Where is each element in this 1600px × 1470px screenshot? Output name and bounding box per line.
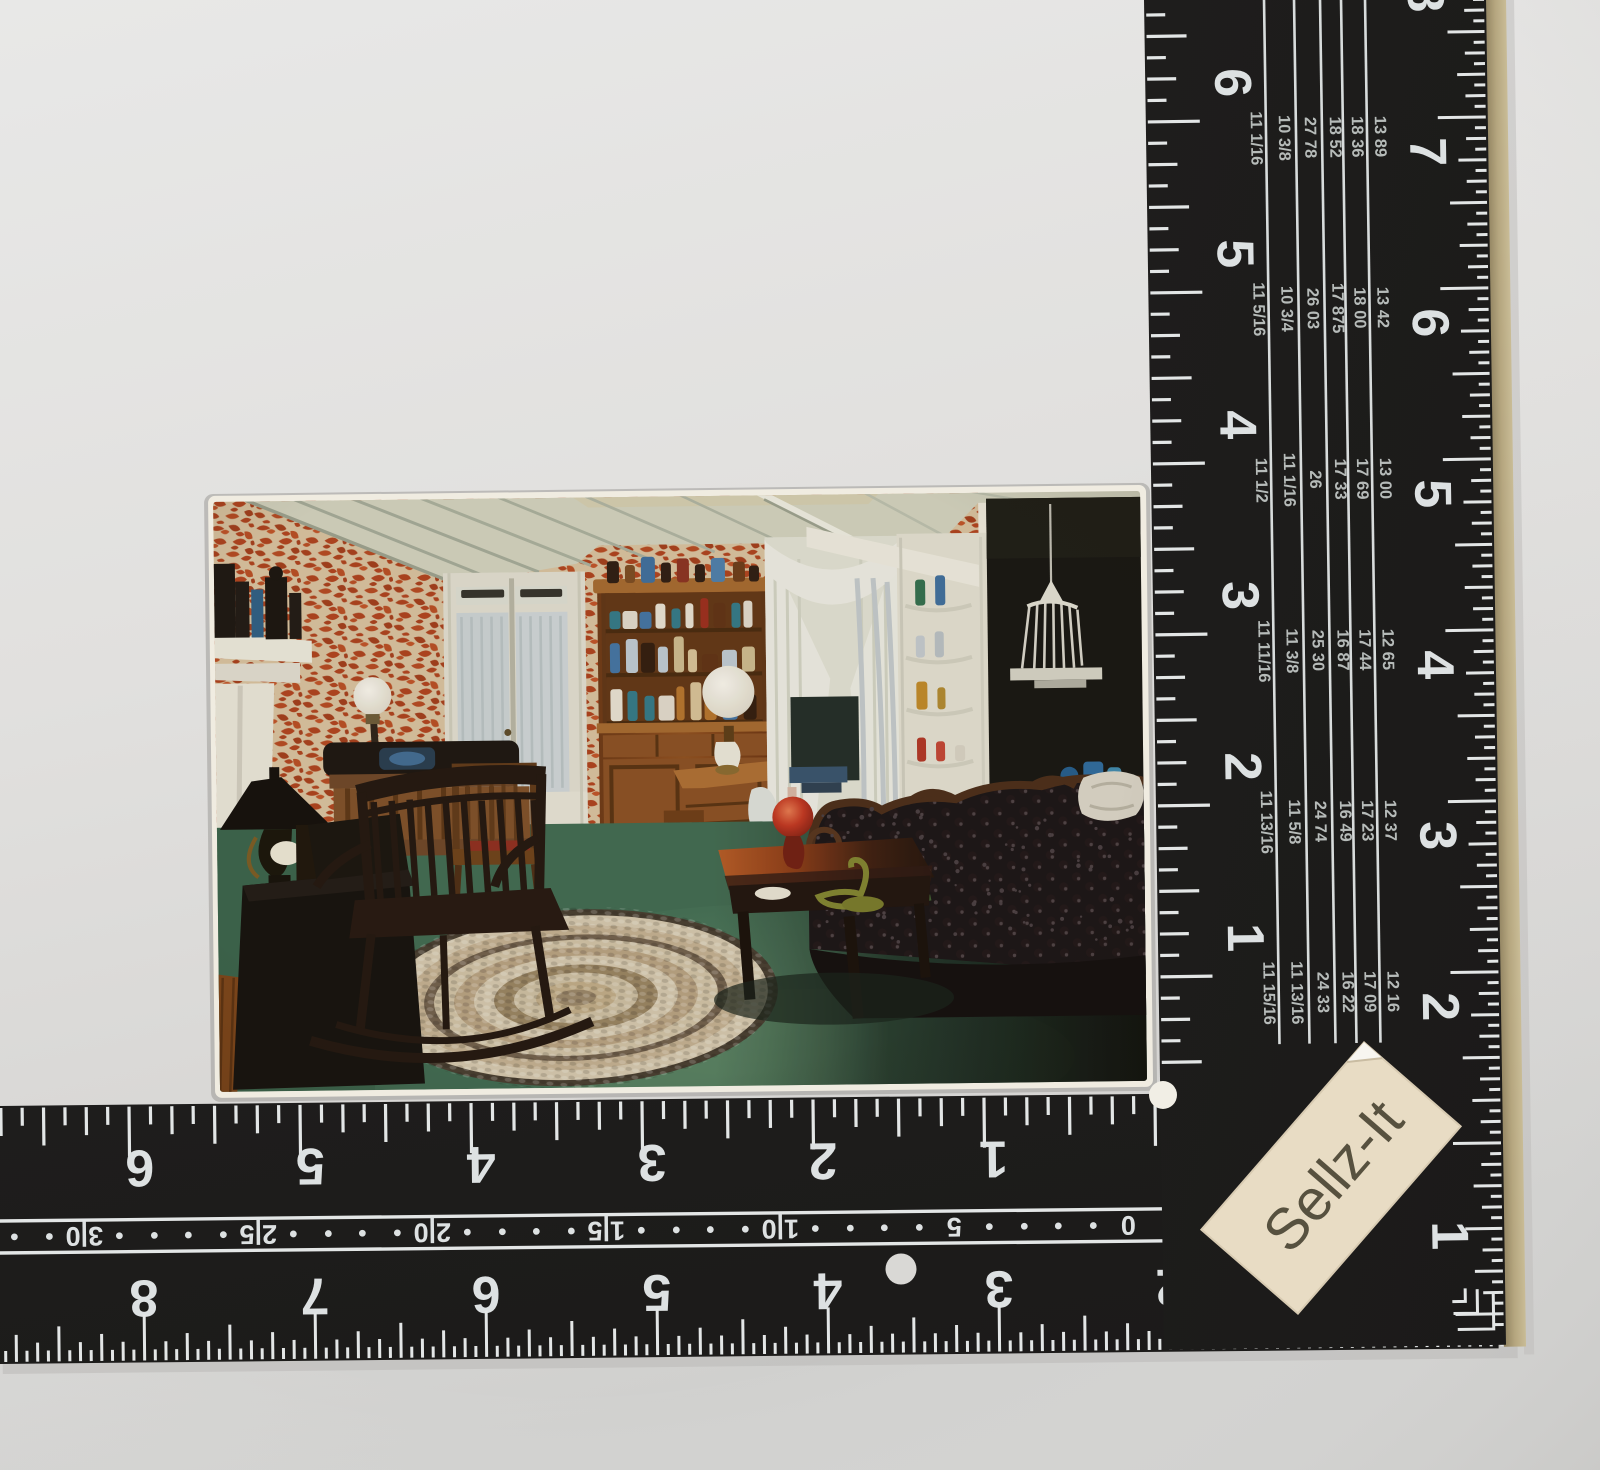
- svg-text:13 89: 13 89: [1371, 116, 1390, 158]
- svg-text:11 3/8: 11 3/8: [1282, 628, 1301, 673]
- svg-text:5: 5: [947, 1212, 962, 1242]
- svg-text:11 1/16: 11 1/16: [1247, 111, 1266, 165]
- svg-text:16 87: 16 87: [1333, 629, 1352, 671]
- svg-text:6: 6: [125, 1138, 155, 1196]
- svg-text:17 69: 17 69: [1353, 458, 1372, 500]
- svg-text:1: 1: [1216, 923, 1274, 953]
- svg-text:26 03: 26 03: [1303, 288, 1322, 330]
- svg-text:6: 6: [1203, 68, 1261, 98]
- svg-text:11 15/16: 11 15/16: [1259, 961, 1278, 1025]
- svg-text:4: 4: [466, 1135, 496, 1193]
- svg-text:18 36: 18 36: [1348, 116, 1367, 158]
- svg-text:12 16: 12 16: [1383, 971, 1402, 1013]
- svg-text:18 00: 18 00: [1350, 287, 1369, 329]
- svg-text:2|5: 2|5: [239, 1219, 277, 1249]
- svg-text:5: 5: [1403, 479, 1461, 509]
- svg-text:13 00: 13 00: [1376, 458, 1395, 500]
- svg-text:17 44: 17 44: [1355, 629, 1374, 671]
- svg-text:5: 5: [296, 1137, 326, 1195]
- svg-text:11 13/16: 11 13/16: [1257, 790, 1276, 854]
- svg-text:25 30: 25 30: [1308, 630, 1327, 672]
- svg-text:13 42: 13 42: [1373, 287, 1392, 329]
- svg-text:17 875: 17 875: [1328, 283, 1347, 334]
- svg-text:17 23: 17 23: [1358, 800, 1377, 842]
- svg-text:17 33: 17 33: [1331, 458, 1350, 500]
- svg-text:24 33: 24 33: [1313, 972, 1332, 1014]
- svg-text:11 11/16: 11 11/16: [1254, 620, 1273, 683]
- svg-text:4: 4: [1208, 410, 1266, 440]
- svg-text:18 52: 18 52: [1326, 116, 1345, 158]
- svg-text:3: 3: [1211, 581, 1269, 611]
- svg-text:6: 6: [1401, 308, 1459, 338]
- svg-text:3|0: 3|0: [65, 1221, 103, 1251]
- svg-text:8: 8: [1396, 0, 1454, 13]
- svg-text:12 37: 12 37: [1381, 800, 1400, 842]
- svg-text:10 3/4: 10 3/4: [1277, 286, 1296, 333]
- svg-text:2: 2: [1411, 992, 1469, 1022]
- svg-text:16 22: 16 22: [1338, 971, 1357, 1013]
- svg-text:2: 2: [1213, 752, 1271, 782]
- svg-text:16 49: 16 49: [1336, 800, 1355, 842]
- svg-text:11 13/16: 11 13/16: [1287, 961, 1306, 1025]
- svg-text:27 78: 27 78: [1301, 117, 1320, 159]
- svg-text:1|0: 1|0: [761, 1214, 799, 1244]
- svg-text:1|5: 1|5: [587, 1215, 625, 1245]
- svg-text:1: 1: [979, 1129, 1009, 1187]
- svg-text:0: 0: [1121, 1210, 1136, 1240]
- svg-text:11 1/2: 11 1/2: [1252, 458, 1271, 503]
- svg-text:10 3/8: 10 3/8: [1275, 115, 1294, 161]
- svg-text:24 74: 24 74: [1311, 801, 1330, 843]
- svg-text:11 5/8: 11 5/8: [1285, 799, 1304, 844]
- svg-text:11 1/16: 11 1/16: [1280, 453, 1299, 507]
- svg-text:11 5/16: 11 5/16: [1249, 282, 1268, 336]
- svg-text:7: 7: [1398, 137, 1456, 167]
- svg-text:2|0: 2|0: [413, 1217, 451, 1247]
- svg-text:2: 2: [808, 1131, 838, 1189]
- svg-text:12 65: 12 65: [1378, 629, 1397, 671]
- svg-text:26: 26: [1306, 470, 1324, 489]
- svg-text:3: 3: [637, 1133, 667, 1191]
- svg-text:4: 4: [1406, 650, 1464, 680]
- svg-text:17 09: 17 09: [1360, 971, 1379, 1013]
- svg-text:1: 1: [1420, 1221, 1478, 1251]
- svg-text:5: 5: [1206, 239, 1264, 269]
- svg-text:3: 3: [1408, 821, 1466, 851]
